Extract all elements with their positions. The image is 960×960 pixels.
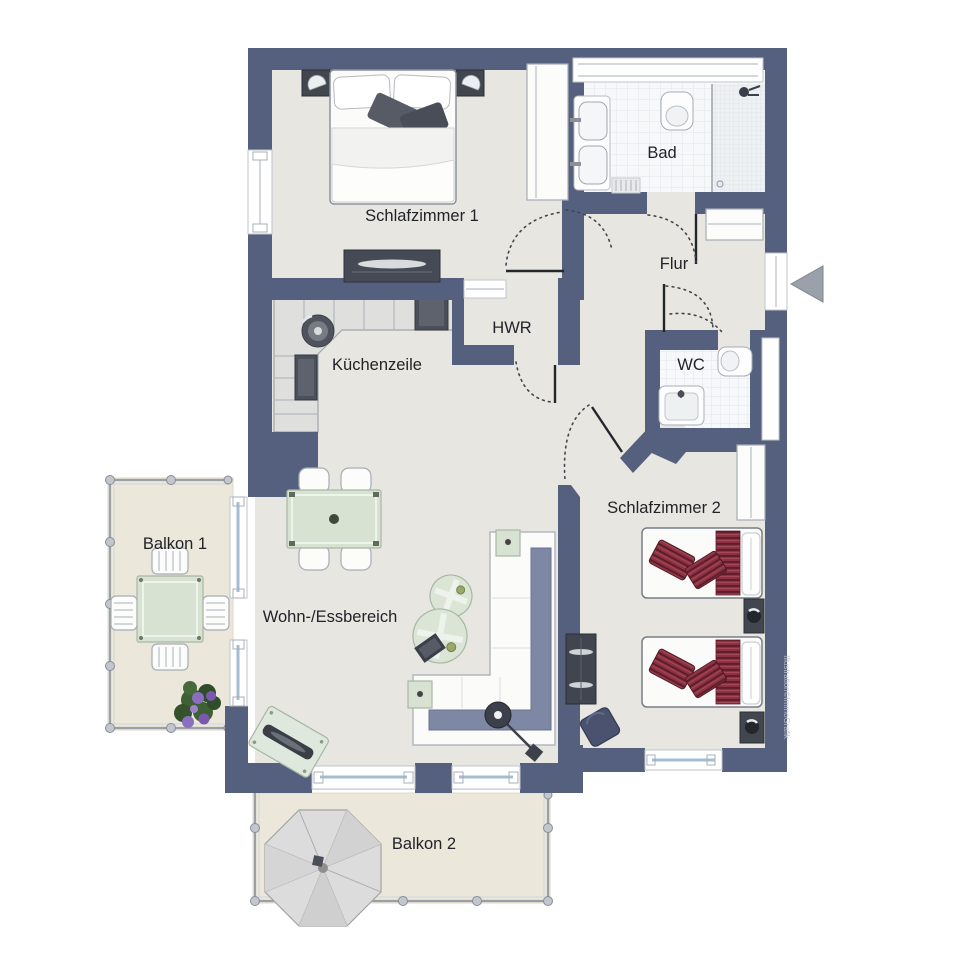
window-bath bbox=[573, 58, 763, 82]
balcony-chair bbox=[203, 596, 229, 630]
hwr-pass-through bbox=[464, 280, 506, 298]
label-wohn-essbereich: Wohn-/Essbereich bbox=[263, 608, 398, 626]
balcony2-slider bbox=[452, 766, 520, 789]
window-bedroom2 bbox=[645, 750, 722, 770]
nightstand bbox=[456, 70, 484, 96]
sofa-side-table bbox=[496, 530, 520, 556]
dresser bbox=[344, 250, 440, 282]
balcony1-slider bbox=[230, 640, 247, 706]
closet bbox=[737, 445, 765, 520]
dresser bbox=[566, 634, 596, 704]
balcony2-slider bbox=[312, 766, 415, 789]
balcony-1 bbox=[106, 476, 234, 733]
label-balkon2: Balkon 2 bbox=[392, 835, 456, 853]
label-schlafzimmer1: Schlafzimmer 1 bbox=[365, 207, 479, 225]
hall-wardrobe bbox=[706, 209, 763, 240]
washbasin bbox=[659, 386, 704, 425]
label-hwr: HWR bbox=[492, 319, 531, 337]
double-washbasin bbox=[570, 96, 610, 190]
wardrobe bbox=[527, 64, 568, 200]
label-balkon1: Balkon 1 bbox=[143, 535, 207, 553]
balcony-table bbox=[137, 576, 203, 642]
watermark: Illustration©ImmoGrafik bbox=[782, 655, 791, 740]
nightstand bbox=[740, 712, 764, 743]
nightstand bbox=[744, 599, 764, 633]
label-wc: WC bbox=[677, 356, 705, 374]
bathroom-floor bbox=[584, 70, 765, 192]
floor-plan: Schlafzimmer 1 Bad Flur HWR Küchenzeile … bbox=[0, 0, 960, 960]
bath-mat bbox=[612, 178, 640, 193]
balcony-chair bbox=[152, 644, 188, 670]
toilet bbox=[661, 92, 693, 130]
single-bed bbox=[642, 637, 762, 707]
sink bbox=[302, 315, 334, 347]
balcony1-slider bbox=[230, 497, 247, 598]
nightstand bbox=[302, 70, 330, 96]
label-schlafzimmer2: Schlafzimmer 2 bbox=[607, 499, 721, 517]
double-bed bbox=[330, 70, 456, 204]
umbrella bbox=[265, 810, 381, 926]
toilet bbox=[718, 347, 752, 376]
window-bedroom1 bbox=[248, 150, 272, 234]
oven bbox=[295, 355, 317, 400]
entrance-opening bbox=[765, 253, 787, 310]
single-bed bbox=[642, 528, 762, 598]
balcony-chair bbox=[111, 596, 137, 630]
label-flur: Flur bbox=[660, 255, 689, 273]
dining-table bbox=[287, 490, 381, 548]
label-kuechenzeile: Küchenzeile bbox=[332, 356, 422, 374]
label-bad: Bad bbox=[647, 144, 676, 162]
sofa-side-table bbox=[408, 681, 432, 708]
shaft bbox=[762, 338, 779, 440]
